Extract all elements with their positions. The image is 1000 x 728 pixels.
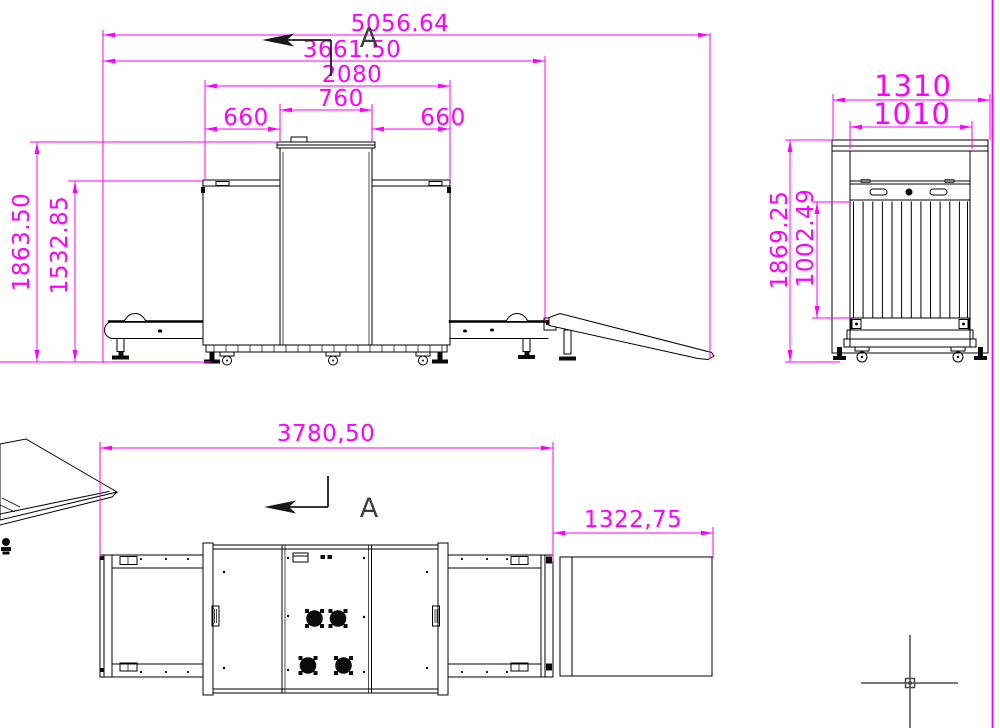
section-label-bottom: A [360,493,379,524]
dim-cabinet-height: 1532.85 [47,196,73,295]
front-view: 5056.64 3661.50 2080 760 660 660 1863.50… [0,11,714,365]
end-machine [832,140,988,362]
front-tower [277,137,375,345]
front-cabinet [201,137,451,365]
cad-drawing-canvas: 5056.64 3661.50 2080 760 660 660 1863.50… [0,0,1000,728]
plan-exit-conveyor [448,555,553,677]
plan-view: 3780,50 1322,75 A [0,421,713,695]
dim-length-to-exit: 3661.50 [303,37,402,63]
section-label-top: A [360,23,379,54]
plan-machine [100,543,712,695]
caster-wheels [220,352,430,365]
plan-exit-ramp [560,557,712,676]
dim-plan-length: 3780,50 [277,421,376,447]
dim-tunnel-height: 1002.49 [793,189,819,288]
plan-entry-conveyor [100,555,203,677]
front-machine-xray-scanner [105,137,715,365]
plan-dimensions: 3780,50 1322,75 [100,421,713,561]
crosshair-cursor-icon [861,635,958,728]
front-exit-ramp [549,314,714,360]
dim-left-panel: 660 [223,105,268,131]
dim-body-width: 1010 [873,97,951,131]
dim-end-overall-height: 1869.25 [767,191,793,290]
section-arrow-a-bottom-icon: A [264,476,379,524]
dim-exit-table-length: 1322,75 [584,507,683,533]
dim-tower-width: 760 [318,86,363,112]
dim-overall-height: 1863.50 [9,193,35,292]
front-entry-conveyor [105,314,204,360]
dim-right-panel: 660 [420,105,465,131]
plan-cabinet [203,543,448,695]
end-view: 1310 1010 1869.25 1002.49 [767,69,990,362]
ramp-perspective-sketch [0,439,117,555]
